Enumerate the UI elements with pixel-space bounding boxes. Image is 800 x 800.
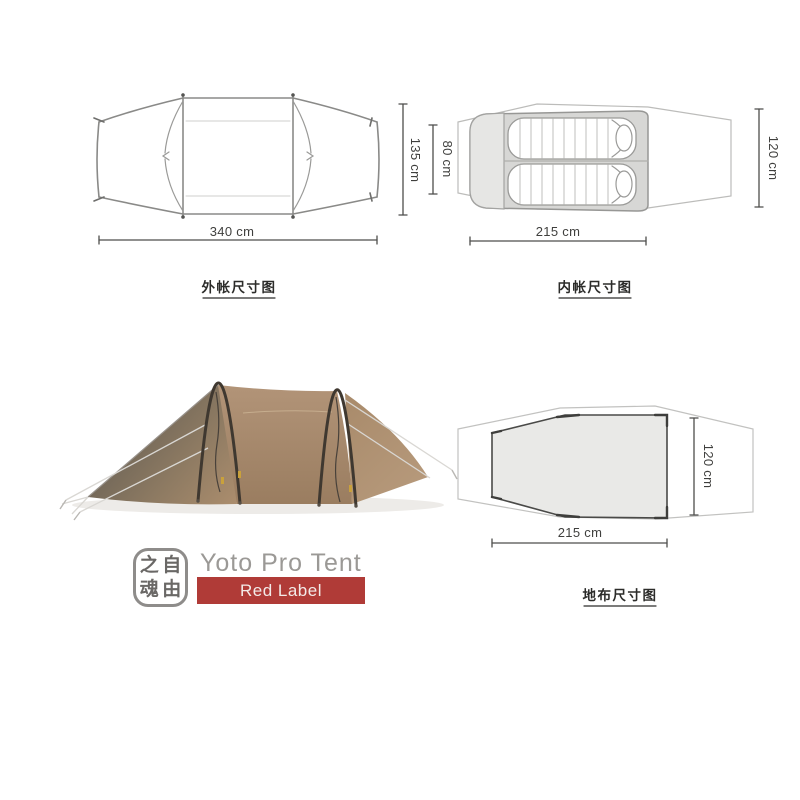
sleeping-pad-bottom: [508, 164, 636, 205]
fly-vestibule-seams: [163, 101, 313, 211]
product-spec-sheet: 340 cm 135 cm 外帐尺寸图: [0, 0, 800, 800]
spec-illustrations: 340 cm 135 cm 外帐尺寸图: [0, 0, 800, 800]
footprint-cloth: [492, 415, 667, 518]
edition-badge: Red Label: [197, 577, 365, 604]
inner-width-dimension: [755, 109, 763, 207]
tent-front-vestibule: [88, 385, 237, 504]
footprint-dimension-diagram: 215 cm 120 cm 地布尺寸图: [458, 406, 753, 606]
inner-door-label: 80 cm: [440, 141, 455, 178]
fly-width-label: 135 cm: [408, 138, 423, 182]
fly-dimension-diagram: 340 cm 135 cm 外帐尺寸图: [94, 93, 423, 298]
inner-length-label: 215 cm: [536, 224, 580, 239]
tent-photo: [60, 383, 457, 520]
fly-caption: 外帐尺寸图: [202, 279, 277, 295]
tent-rear-vestibule: [345, 393, 428, 504]
fly-guy-out-ticks: [94, 118, 372, 201]
logo-character-bottom-left: 魂: [140, 580, 159, 599]
logo-character-top-left: 之: [140, 556, 159, 575]
fly-length-label: 340 cm: [210, 224, 254, 239]
fly-outline: [97, 94, 379, 218]
edition-badge-label: Red Label: [240, 581, 322, 601]
brand-logo-seal: 之 自 魂 由: [133, 548, 188, 607]
logo-character-bottom-right: 由: [162, 580, 181, 599]
inner-tent-vestibule-panel: [470, 113, 504, 209]
inner-width-label: 120 cm: [766, 136, 781, 180]
sleeping-pad-top: [508, 118, 636, 159]
inner-door-dimension: [429, 125, 437, 194]
inner-caption: 内帐尺寸图: [558, 279, 633, 295]
inner-tent-dimension-diagram: 80 cm 215 cm 120 cm 内帐尺寸图: [429, 104, 781, 298]
footprint-width-dimension: [690, 418, 698, 515]
footprint-caption: 地布尺寸图: [583, 587, 658, 603]
product-name: Yoto Pro Tent: [200, 549, 362, 578]
footprint-length-dimension: [492, 539, 667, 547]
footprint-length-label: 215 cm: [558, 525, 602, 540]
footprint-width-label: 120 cm: [701, 444, 716, 488]
logo-character-top-right: 自: [162, 556, 181, 575]
fly-inner-tent-ghost-lines: [186, 121, 290, 196]
fly-width-dimension: [399, 104, 407, 215]
fly-corner-points: [181, 93, 295, 219]
